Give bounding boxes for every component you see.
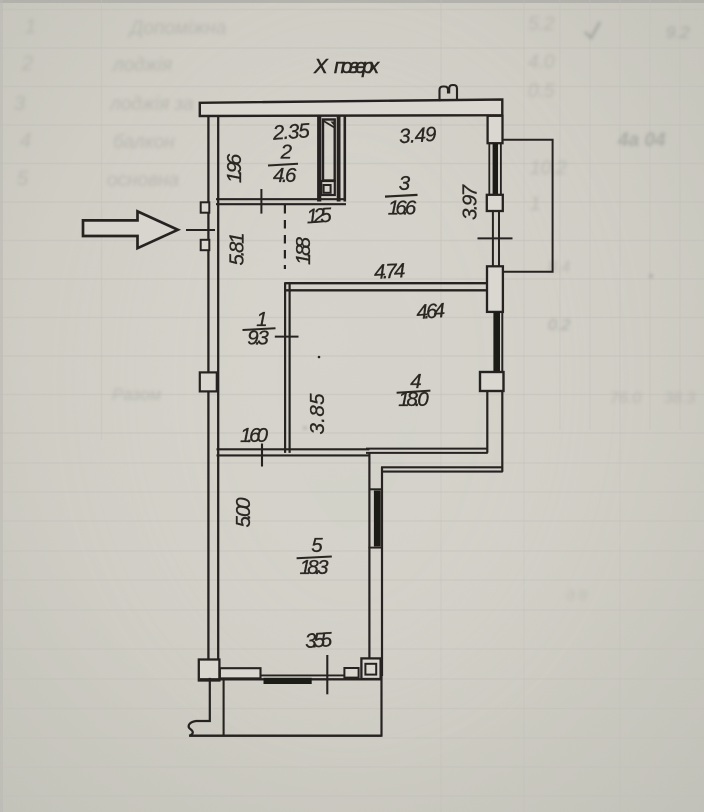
svg-text:4.64: 4.64 [416, 299, 446, 324]
svg-text:Разом: Разом [112, 385, 162, 404]
svg-text:д 8: д 8 [566, 587, 587, 604]
svg-text:3: 3 [399, 172, 411, 195]
svg-text:3.55: 3.55 [304, 628, 333, 653]
svg-text:8.4: 8.4 [548, 259, 570, 276]
svg-text:балкон: балкон [113, 132, 175, 153]
svg-text:1.96: 1.96 [223, 153, 246, 183]
svg-text:основна: основна [107, 170, 179, 191]
svg-text:Допоміжна: Допоміжна [128, 18, 226, 39]
svg-text:3: 3 [14, 93, 25, 115]
svg-text:5.81: 5.81 [226, 233, 249, 266]
svg-text:4: 4 [20, 130, 31, 152]
svg-text:1: 1 [530, 194, 541, 215]
svg-text:2: 2 [21, 53, 33, 75]
svg-text:1.25: 1.25 [306, 204, 333, 229]
svg-text:Х: Х [313, 55, 329, 78]
svg-text:76.0: 76.0 [610, 390, 641, 407]
svg-text:5.00: 5.00 [232, 497, 255, 528]
svg-text:9.2: 9.2 [666, 23, 690, 42]
svg-text:9.3: 9.3 [247, 327, 269, 350]
svg-text:16.6: 16.6 [388, 197, 417, 220]
svg-text:38.3: 38.3 [664, 390, 695, 407]
svg-text:лоджія за: лоджія за [109, 94, 194, 115]
svg-text:5.2: 5.2 [528, 14, 555, 35]
svg-text:3.49: 3.49 [398, 123, 437, 149]
svg-text:4.6: 4.6 [273, 164, 297, 187]
svg-text:18.3: 18.3 [300, 556, 330, 579]
svg-text:3.97: 3.97 [459, 183, 482, 220]
svg-text:4а 04: 4а 04 [617, 130, 666, 151]
svg-text:18.0: 18.0 [398, 388, 429, 411]
svg-text:3.85: 3.85 [306, 393, 329, 435]
svg-text:2: 2 [280, 140, 293, 163]
svg-text:5: 5 [311, 534, 323, 557]
svg-text:5: 5 [17, 168, 29, 190]
svg-text:1.88: 1.88 [292, 236, 315, 265]
svg-text:10.2: 10.2 [530, 158, 567, 179]
svg-text:поверх: поверх [334, 55, 380, 78]
svg-text:4.74: 4.74 [373, 259, 405, 284]
svg-text:0.2: 0.2 [548, 317, 570, 334]
svg-text:1.60: 1.60 [240, 424, 269, 447]
svg-text:0.5: 0.5 [528, 81, 555, 102]
svg-text:лоджія: лоджія [112, 55, 172, 76]
svg-text:1: 1 [25, 16, 36, 38]
svg-text:4.0: 4.0 [528, 52, 555, 73]
